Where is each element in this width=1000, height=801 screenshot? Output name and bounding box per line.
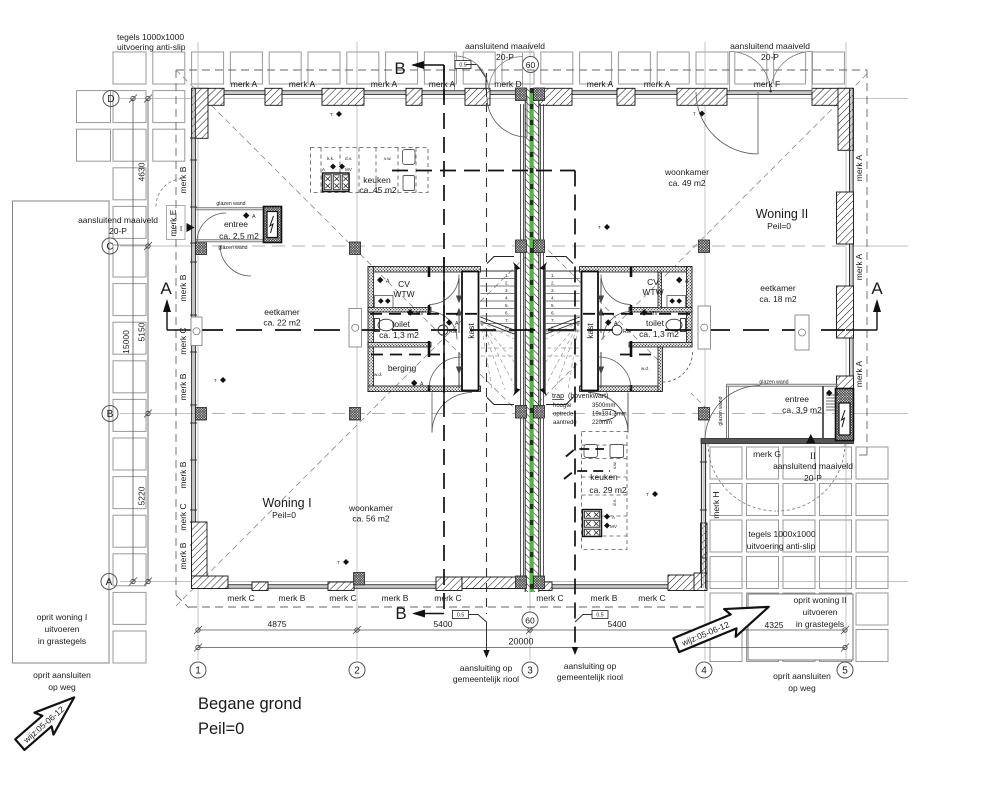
svg-text:oprit woning II: oprit woning II: [794, 595, 847, 605]
svg-text:ca. 22 m2: ca. 22 m2: [263, 318, 301, 328]
svg-text:5.: 5.: [505, 303, 509, 308]
svg-text:B: B: [107, 409, 114, 420]
svg-text:MV: MV: [416, 311, 424, 317]
svg-text:ca. 2,5 m2: ca. 2,5 m2: [219, 231, 259, 241]
svg-text:4.: 4.: [505, 296, 509, 301]
svg-text:A: A: [386, 279, 390, 285]
svg-text:merk C: merk C: [329, 593, 356, 603]
svg-text:5400: 5400: [608, 619, 627, 629]
svg-text:merk G: merk G: [753, 449, 781, 459]
svg-text:RM: RM: [623, 329, 631, 335]
svg-text:merk D: merk D: [494, 79, 521, 89]
svg-text:hoogte: hoogte: [553, 403, 572, 409]
svg-text:v.w.: v.w.: [384, 156, 392, 161]
svg-text:D: D: [107, 94, 114, 105]
svg-text:aantrede: aantrede: [553, 420, 577, 426]
svg-text:0.5: 0.5: [457, 613, 464, 619]
svg-text:MV: MV: [610, 524, 618, 529]
svg-text:II: II: [810, 451, 816, 461]
svg-text:A: A: [685, 279, 689, 285]
svg-text:4875: 4875: [268, 619, 287, 629]
svg-text:A: A: [252, 214, 256, 220]
svg-text:aansluiting op: aansluiting op: [460, 663, 513, 673]
svg-text:T: T: [693, 112, 696, 117]
svg-text:glazen wand: glazen wand: [216, 201, 245, 207]
svg-text:merk B: merk B: [279, 593, 306, 603]
svg-text:A: A: [871, 279, 883, 298]
svg-text:MV: MV: [650, 311, 658, 317]
svg-text:0.5: 0.5: [596, 613, 603, 619]
svg-text:0.5: 0.5: [459, 63, 466, 69]
svg-text:ca. 56 m2: ca. 56 m2: [352, 514, 390, 524]
svg-text:T: T: [214, 378, 217, 383]
svg-text:Peil=0: Peil=0: [272, 510, 296, 520]
svg-text:kast: kast: [466, 323, 476, 339]
svg-text:aansluitend maaiveld: aansluitend maaiveld: [78, 215, 158, 225]
svg-text:5.: 5.: [551, 303, 555, 308]
svg-text:woonkamer: woonkamer: [348, 503, 393, 513]
svg-text:merk C: merk C: [536, 593, 563, 603]
svg-text:ca. 1,3 m2: ca. 1,3 m2: [379, 330, 419, 340]
svg-text:WTW: WTW: [642, 287, 663, 297]
svg-text:5150: 5150: [137, 322, 147, 341]
svg-text:8.: 8.: [505, 326, 509, 331]
svg-text:3500mm: 3500mm: [592, 403, 615, 409]
svg-text:tegels 1000x1000: tegels 1000x1000: [748, 529, 815, 539]
svg-text:w.d.: w.d.: [374, 372, 382, 377]
svg-text:B: B: [395, 604, 406, 623]
svg-text:uitvoering anti-slip: uitvoering anti-slip: [117, 42, 186, 52]
svg-text:Woning II: Woning II: [756, 207, 809, 221]
svg-text:B: B: [394, 59, 405, 78]
svg-text:60: 60: [525, 616, 535, 626]
svg-text:kast: kast: [585, 323, 595, 339]
svg-text:op weg: op weg: [788, 683, 816, 693]
svg-text:2: 2: [354, 666, 360, 677]
svg-text:5400: 5400: [434, 619, 453, 629]
svg-text:6.: 6.: [551, 311, 555, 316]
svg-text:merk E: merk E: [168, 209, 178, 236]
svg-text:RM: RM: [449, 329, 457, 335]
svg-text:toilet: toilet: [392, 319, 411, 329]
svg-text:merk A: merk A: [854, 253, 864, 280]
svg-text:merk B: merk B: [178, 542, 188, 569]
svg-text:uitvoering anti-slip: uitvoering anti-slip: [747, 541, 816, 551]
svg-text:4: 4: [701, 666, 707, 677]
svg-text:v.w.: v.w.: [612, 461, 617, 469]
svg-text:uitvoeren: uitvoeren: [45, 624, 80, 634]
svg-text:T: T: [598, 225, 601, 230]
svg-text:ca. 3,9 m2: ca. 3,9 m2: [782, 405, 822, 415]
svg-text:merk B: merk B: [178, 166, 188, 193]
svg-text:20-P: 20-P: [496, 52, 514, 62]
svg-text:glazen wand: glazen wand: [718, 396, 724, 425]
svg-text:keuken: keuken: [363, 175, 391, 185]
svg-text:A: A: [420, 382, 424, 388]
svg-text:merk B: merk B: [382, 593, 409, 603]
svg-text:4.: 4.: [551, 296, 555, 301]
svg-text:aansluiting op: aansluiting op: [564, 661, 617, 671]
svg-text:entree: entree: [785, 394, 809, 404]
svg-text:ca. 1,3 m2: ca. 1,3 m2: [639, 329, 679, 339]
svg-text:15000: 15000: [121, 330, 131, 354]
svg-text:oprit aansluiten: oprit aansluiten: [33, 670, 91, 680]
svg-text:4325: 4325: [765, 620, 784, 630]
svg-text:20-P: 20-P: [109, 226, 127, 236]
svg-text:d.v.: d.v.: [612, 499, 617, 506]
svg-text:merk A: merk A: [644, 79, 671, 89]
svg-text:6.: 6.: [505, 311, 509, 316]
svg-text:glazen wand: glazen wand: [218, 245, 247, 251]
svg-text:(bovenkwart): (bovenkwart): [568, 393, 608, 400]
svg-text:entree: entree: [224, 219, 248, 229]
svg-text:merk F: merk F: [754, 79, 780, 89]
svg-text:7.: 7.: [505, 318, 509, 323]
svg-text:trap: trap: [552, 393, 564, 400]
svg-text:gemeentelijk riool: gemeentelijk riool: [453, 674, 519, 684]
svg-text:7.: 7.: [551, 318, 555, 323]
svg-text:tegels 1000x1000: tegels 1000x1000: [117, 32, 184, 42]
svg-text:2.: 2.: [505, 281, 509, 286]
svg-text:Begane grond: Begane grond: [198, 695, 302, 713]
svg-text:4630: 4630: [137, 162, 147, 181]
svg-text:in grastegels: in grastegels: [796, 619, 844, 629]
svg-text:ca. 18 m2: ca. 18 m2: [759, 294, 797, 304]
svg-text:glazen wand: glazen wand: [759, 380, 788, 386]
svg-text:T: T: [330, 112, 333, 117]
svg-text:1.: 1.: [551, 273, 555, 278]
svg-text:MV: MV: [345, 167, 353, 172]
svg-text:ca. 45 m2: ca. 45 m2: [359, 185, 397, 195]
svg-text:Peil=0: Peil=0: [767, 221, 791, 231]
svg-text:3.: 3.: [505, 288, 509, 293]
svg-text:merk B: merk B: [178, 461, 188, 488]
svg-text:w.d.: w.d.: [641, 366, 649, 371]
svg-text:3.: 3.: [551, 288, 555, 293]
svg-text:merk C: merk C: [178, 327, 188, 354]
svg-text:merk A: merk A: [289, 79, 316, 89]
svg-text:Woning I: Woning I: [262, 496, 311, 510]
svg-text:aansluitend maaiveld: aansluitend maaiveld: [465, 41, 545, 51]
svg-text:A: A: [455, 321, 459, 327]
svg-text:eetkamer: eetkamer: [264, 307, 300, 317]
svg-text:merk C: merk C: [227, 593, 254, 603]
svg-text:merk A: merk A: [429, 79, 456, 89]
svg-text:20-P: 20-P: [761, 52, 779, 62]
svg-text:oprit aansluiten: oprit aansluiten: [773, 671, 831, 681]
svg-text:merk C: merk C: [178, 503, 188, 530]
svg-text:CV: CV: [647, 277, 659, 287]
svg-text:aansluitend maaiveld: aansluitend maaiveld: [730, 41, 810, 51]
svg-text:T: T: [646, 492, 649, 497]
svg-text:20-P: 20-P: [804, 473, 822, 483]
svg-text:merk A: merk A: [854, 154, 864, 181]
svg-text:merk B: merk B: [178, 274, 188, 301]
svg-text:d.v.: d.v.: [345, 156, 352, 161]
svg-text:merk B: merk B: [591, 593, 618, 603]
svg-text:5220: 5220: [137, 486, 147, 505]
svg-text:berging: berging: [388, 363, 417, 373]
svg-text:A: A: [835, 392, 839, 398]
svg-text:merk A: merk A: [231, 79, 258, 89]
svg-text:op weg: op weg: [48, 682, 76, 692]
svg-text:ca. 29 m2: ca. 29 m2: [589, 485, 627, 495]
svg-text:Peil=0: Peil=0: [198, 720, 244, 738]
svg-text:optrede: optrede: [553, 412, 574, 418]
svg-text:aansluitend maaiveld: aansluitend maaiveld: [773, 461, 853, 471]
svg-text:merk C: merk C: [638, 593, 665, 603]
svg-text:1: 1: [195, 666, 201, 677]
svg-text:toilet: toilet: [646, 318, 665, 328]
svg-text:merk C: merk C: [434, 593, 461, 603]
svg-text:2.: 2.: [551, 281, 555, 286]
svg-text:60: 60: [526, 60, 536, 70]
svg-text:k.k.: k.k.: [327, 156, 334, 161]
svg-text:eetkamer: eetkamer: [760, 283, 796, 293]
svg-text:woonkamer: woonkamer: [664, 167, 709, 177]
svg-text:oprit woning I: oprit woning I: [37, 612, 88, 622]
svg-text:3: 3: [527, 666, 533, 677]
svg-text:merk H: merk H: [711, 491, 721, 518]
svg-text:merk B: merk B: [178, 373, 188, 400]
svg-text:A: A: [106, 577, 113, 588]
svg-text:WTW: WTW: [393, 289, 414, 299]
svg-text:CV: CV: [398, 279, 410, 289]
svg-text:T: T: [337, 560, 340, 565]
svg-text:merk A: merk A: [854, 360, 864, 387]
svg-text:20000: 20000: [508, 637, 533, 647]
svg-text:uitvoeren: uitvoeren: [803, 607, 838, 617]
svg-text:keuken: keuken: [590, 472, 618, 482]
svg-text:C: C: [106, 242, 113, 253]
svg-text:in grastegels: in grastegels: [38, 636, 86, 646]
svg-text:merk A: merk A: [587, 79, 614, 89]
svg-text:19x184.2mm: 19x184.2mm: [592, 412, 627, 418]
svg-text:A: A: [160, 279, 172, 298]
svg-text:1.: 1.: [505, 273, 509, 278]
svg-text:5: 5: [842, 666, 848, 677]
svg-text:gemeentelijk riool: gemeentelijk riool: [557, 672, 623, 682]
svg-text:ca. 49 m2: ca. 49 m2: [668, 178, 706, 188]
svg-text:merk A: merk A: [371, 79, 398, 89]
